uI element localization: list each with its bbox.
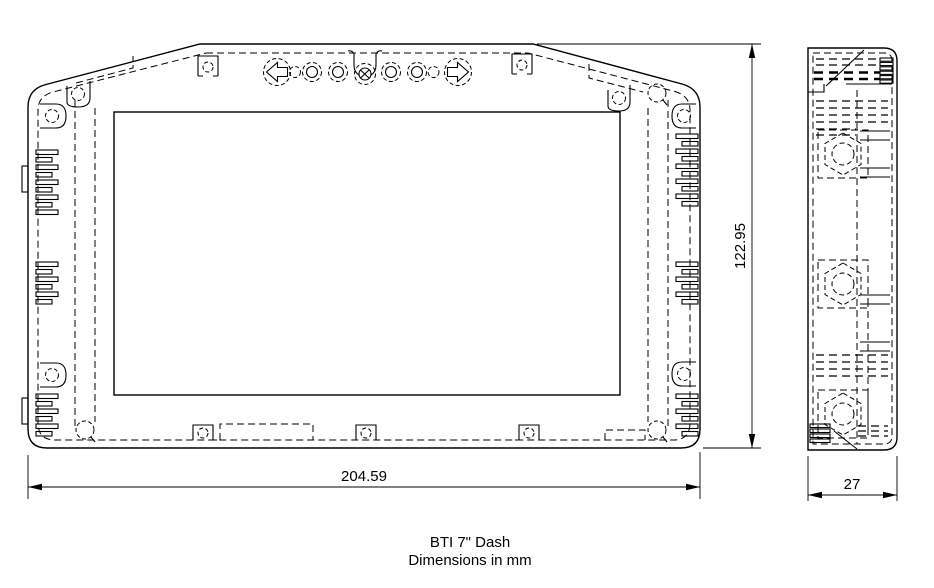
front-inner-hidden-outline bbox=[38, 53, 690, 440]
side-mid-vents bbox=[816, 355, 888, 376]
nav-right-button bbox=[445, 59, 472, 86]
small-button-hole-right bbox=[428, 67, 439, 78]
hex-nut-top bbox=[818, 130, 868, 178]
top-right-hanging-tab bbox=[608, 85, 630, 111]
center-power-button bbox=[348, 51, 382, 85]
left-boss-bottom bbox=[40, 363, 66, 387]
title-block: BTI 7" Dash Dimensions in mm bbox=[408, 534, 531, 569]
side-top-vents bbox=[808, 50, 892, 135]
display-screen bbox=[114, 112, 620, 395]
dim-arrow-down bbox=[749, 434, 755, 448]
corner-hidden-circles bbox=[76, 84, 667, 442]
side-view bbox=[808, 48, 897, 450]
bezel-hidden-lines bbox=[75, 100, 668, 428]
right-boss-top bbox=[672, 104, 696, 128]
nav-left-button bbox=[264, 59, 291, 86]
dimension-side-depth: 27 bbox=[808, 456, 897, 501]
small-button-hole-left bbox=[290, 67, 301, 78]
technical-drawing: 204.59 122.95 27 BTI 7" Dash Dimensions … bbox=[0, 0, 934, 588]
top-button-row bbox=[264, 51, 472, 86]
right-edge-connector-combs bbox=[676, 134, 698, 436]
dim-arrow-right bbox=[686, 484, 700, 490]
round-button-3 bbox=[382, 63, 401, 82]
right-arrow-icon bbox=[448, 63, 469, 82]
front-width-value: 204.59 bbox=[341, 468, 387, 485]
bottom-mounting-tab-2 bbox=[352, 425, 380, 440]
dimension-front-width: 204.59 bbox=[28, 452, 700, 499]
front-view bbox=[22, 44, 700, 448]
side-depth-value: 27 bbox=[844, 476, 861, 493]
bottom-mounting-tab-1 bbox=[189, 425, 217, 440]
bottom-hidden-pockets bbox=[220, 424, 645, 440]
side-step-lines bbox=[860, 131, 890, 351]
top-mounting-tab-right bbox=[512, 54, 532, 74]
side-bottom-connector bbox=[810, 424, 888, 449]
dim-arrow-left bbox=[28, 484, 42, 490]
dimension-front-height: 122.95 bbox=[537, 44, 761, 448]
drawing-subtitle: Dimensions in mm bbox=[408, 552, 531, 569]
top-left-hanging-tab bbox=[67, 81, 90, 107]
round-button-1 bbox=[303, 63, 322, 82]
round-button-4 bbox=[408, 63, 427, 82]
left-arrow-icon bbox=[267, 63, 288, 82]
left-boss-top bbox=[40, 104, 66, 128]
drawing-canvas: 204.59 122.95 27 BTI 7" Dash Dimensions … bbox=[0, 0, 934, 588]
right-boss-bottom bbox=[672, 362, 696, 386]
dim-arrow-up bbox=[749, 44, 755, 58]
front-height-value: 122.95 bbox=[732, 223, 749, 269]
round-button-2 bbox=[329, 63, 348, 82]
side-top-right-connector bbox=[880, 58, 893, 83]
front-outer-housing bbox=[28, 44, 700, 448]
hex-nut-middle bbox=[818, 260, 868, 308]
dim-arrow-left bbox=[808, 492, 822, 498]
side-inner-hidden-outline bbox=[813, 53, 892, 444]
top-mounting-tab-left bbox=[198, 56, 218, 76]
dim-arrow-right bbox=[883, 492, 897, 498]
bottom-mounting-tab-3 bbox=[515, 425, 543, 440]
drawing-title: BTI 7" Dash bbox=[430, 534, 510, 551]
